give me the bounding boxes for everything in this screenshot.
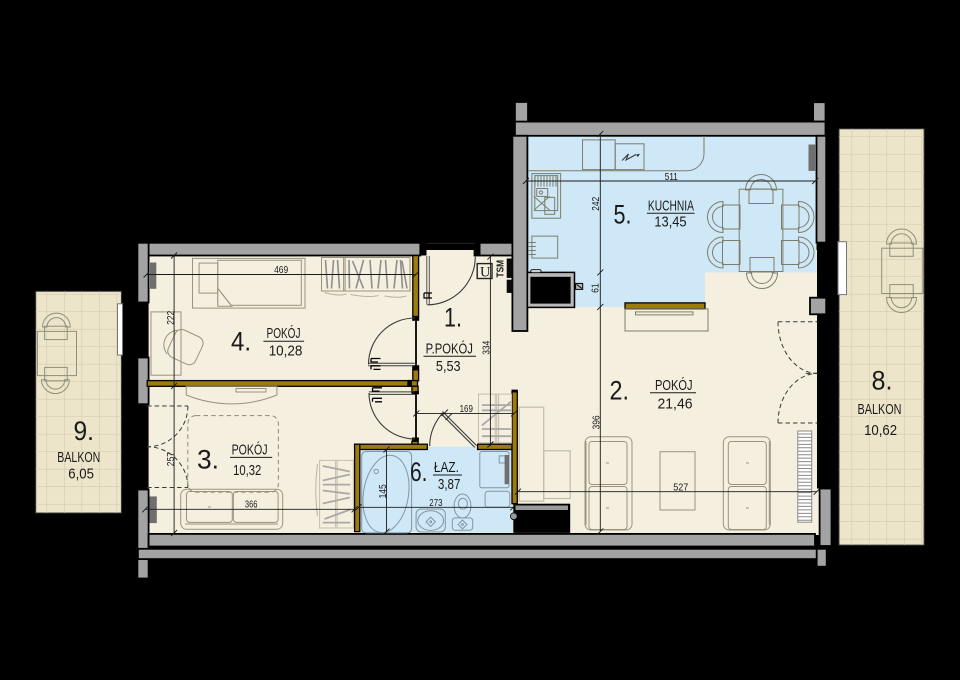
svg-text:222: 222 [165,311,177,325]
svg-text:BALKON: BALKON [858,401,902,418]
svg-text:8.: 8. [872,366,893,396]
svg-text:6.: 6. [410,457,428,487]
svg-text:ŁAZ.: ŁAZ. [434,459,459,476]
svg-text:POKÓJ: POKÓJ [655,377,693,394]
svg-text:21,46: 21,46 [658,396,693,413]
svg-text:2.: 2. [610,376,630,406]
svg-text:366: 366 [245,498,258,510]
svg-text:145: 145 [377,484,389,498]
svg-text:10,32: 10,32 [233,462,261,479]
svg-text:9.: 9. [74,416,95,446]
svg-text:U: U [480,264,491,280]
svg-text:4.: 4. [231,327,251,357]
svg-text:3.: 3. [197,445,219,475]
svg-text:BALKON: BALKON [57,449,100,466]
svg-text:10,62: 10,62 [864,422,897,439]
svg-text:POKÓJ: POKÓJ [232,442,268,459]
svg-text:P.POKÓJ: P.POKÓJ [426,341,473,358]
svg-text:13,45: 13,45 [654,213,686,230]
svg-text:5,53: 5,53 [436,358,461,375]
svg-text:169: 169 [460,403,473,415]
svg-text:TSM: TSM [495,260,506,278]
svg-text:5.: 5. [614,199,632,229]
svg-text:511: 511 [665,171,678,183]
svg-text:3,87: 3,87 [438,476,461,493]
svg-text:257: 257 [165,452,177,466]
svg-text:6,05: 6,05 [68,466,94,483]
svg-text:469: 469 [274,264,288,276]
svg-text:61: 61 [589,283,601,293]
svg-text:10,28: 10,28 [269,342,303,359]
svg-text:396: 396 [591,415,603,429]
svg-text:334: 334 [480,341,492,355]
svg-text:273: 273 [429,497,442,509]
svg-text:242: 242 [590,197,602,211]
svg-text:527: 527 [673,482,688,494]
svg-text:1.: 1. [444,302,462,332]
svg-text:KUCHNIA: KUCHNIA [648,198,694,215]
svg-text:POKÓJ: POKÓJ [267,325,301,342]
